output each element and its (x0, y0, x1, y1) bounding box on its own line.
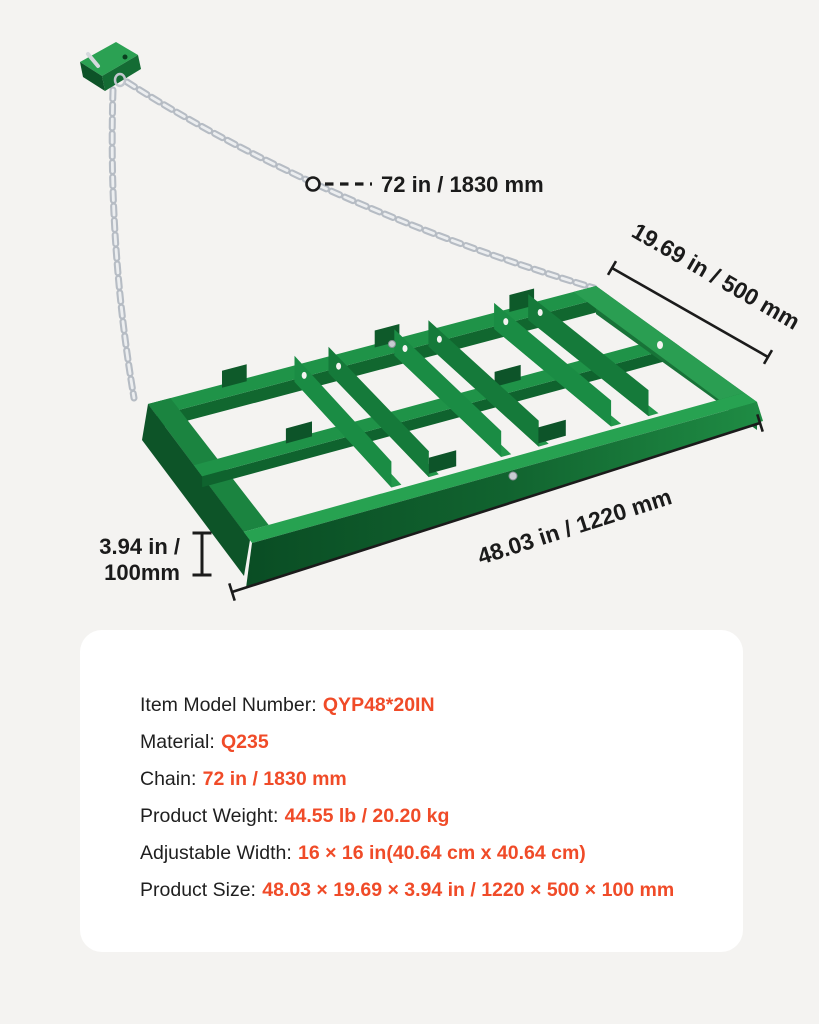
crossbar-2-hole (336, 363, 341, 370)
hinge-bolt (389, 341, 396, 348)
crossbar-4-hole (437, 336, 442, 343)
height-label-line1: 3.94 in / (99, 534, 180, 559)
crossbar-1-hole (302, 372, 307, 379)
spec-label: Material: (140, 724, 215, 761)
spec-row-weight: Product Weight: 44.55 lb / 20.20 kg (140, 798, 723, 835)
height-label-line2: 100mm (104, 560, 180, 585)
front-rail-top (244, 393, 757, 543)
spec-label: Product Weight: (140, 798, 278, 835)
chain-point-marker-icon (307, 178, 320, 191)
depth-label: 19.69 in / 500 mm (628, 218, 805, 335)
crossbar-3-hole (403, 345, 408, 352)
depth-tick-end (764, 350, 772, 364)
spec-panel: Item Model Number: QYP48*20IN Material: … (80, 630, 743, 952)
spec-row-model: Item Model Number: QYP48*20IN (140, 687, 723, 724)
spec-label: Item Model Number: (140, 687, 317, 724)
front-tab-1 (429, 450, 456, 474)
hitch-pin-hole (123, 55, 128, 60)
spec-value: QYP48*20IN (323, 687, 435, 724)
product-image-stage: 72 in / 1830 mm 19.69 in / 500 mm 48.03 … (0, 0, 819, 1024)
annotation-height: 3.94 in / 100mm (99, 533, 211, 585)
spec-value: 16 × 16 in(40.64 cm x 40.64 cm) (298, 835, 586, 872)
front-tab-2 (538, 420, 565, 444)
center-bolt (509, 472, 517, 480)
spec-label: Adjustable Width: (140, 835, 292, 872)
spec-label: Product Size: (140, 872, 256, 909)
tow-chain-left (112, 90, 134, 398)
spec-label: Chain: (140, 761, 196, 798)
spec-value: 72 in / 1830 mm (203, 761, 347, 798)
crossbar-5-hole (503, 318, 508, 325)
drag-frame (142, 286, 763, 588)
right-top-hole (657, 341, 663, 349)
spec-row-chain: Chain: 72 in / 1830 mm (140, 761, 723, 798)
spec-value: 48.03 × 19.69 × 3.94 in / 1220 × 500 × 1… (262, 872, 674, 909)
spec-value: 44.55 lb / 20.20 kg (285, 798, 450, 835)
spec-row-adjustable-width: Adjustable Width: 16 × 16 in(40.64 cm x … (140, 835, 723, 872)
crossbar-6-hole (538, 309, 543, 316)
chain-length-label: 72 in / 1830 mm (381, 172, 544, 197)
spec-row-product-size: Product Size: 48.03 × 19.69 × 3.94 in / … (140, 872, 723, 909)
spec-value: Q235 (221, 724, 269, 761)
spec-row-material: Material: Q235 (140, 724, 723, 761)
depth-tick-start (608, 261, 616, 275)
